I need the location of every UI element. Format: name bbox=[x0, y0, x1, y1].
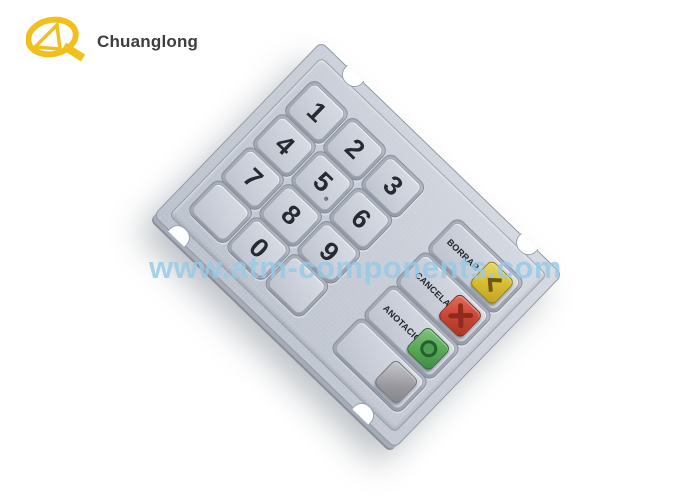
key-label: 6 bbox=[346, 204, 376, 234]
key-label: 3 bbox=[378, 171, 408, 201]
key-label: 2 bbox=[340, 134, 370, 164]
product-photo: Chuanglong 1 2 3 4 5 6 bbox=[0, 0, 700, 500]
key-label: 4 bbox=[270, 131, 300, 161]
brand-logo: Chuanglong bbox=[26, 15, 198, 65]
key-label: 8 bbox=[276, 200, 306, 230]
key-label: 7 bbox=[238, 164, 268, 194]
tactile-dot bbox=[323, 196, 329, 202]
confirm-circle-icon bbox=[413, 333, 444, 364]
key-label: 1 bbox=[302, 97, 332, 127]
key-label: 5 bbox=[308, 167, 338, 197]
blank-insert bbox=[373, 358, 420, 405]
keypad-plate: 1 2 3 4 5 6 7 8 9 bbox=[153, 41, 563, 448]
brand-name: Chuanglong bbox=[97, 32, 198, 52]
chuanglong-logo-icon bbox=[26, 15, 88, 65]
cancel-x-icon bbox=[445, 300, 476, 331]
watermark-text: www.atm-components.com bbox=[149, 250, 562, 286]
